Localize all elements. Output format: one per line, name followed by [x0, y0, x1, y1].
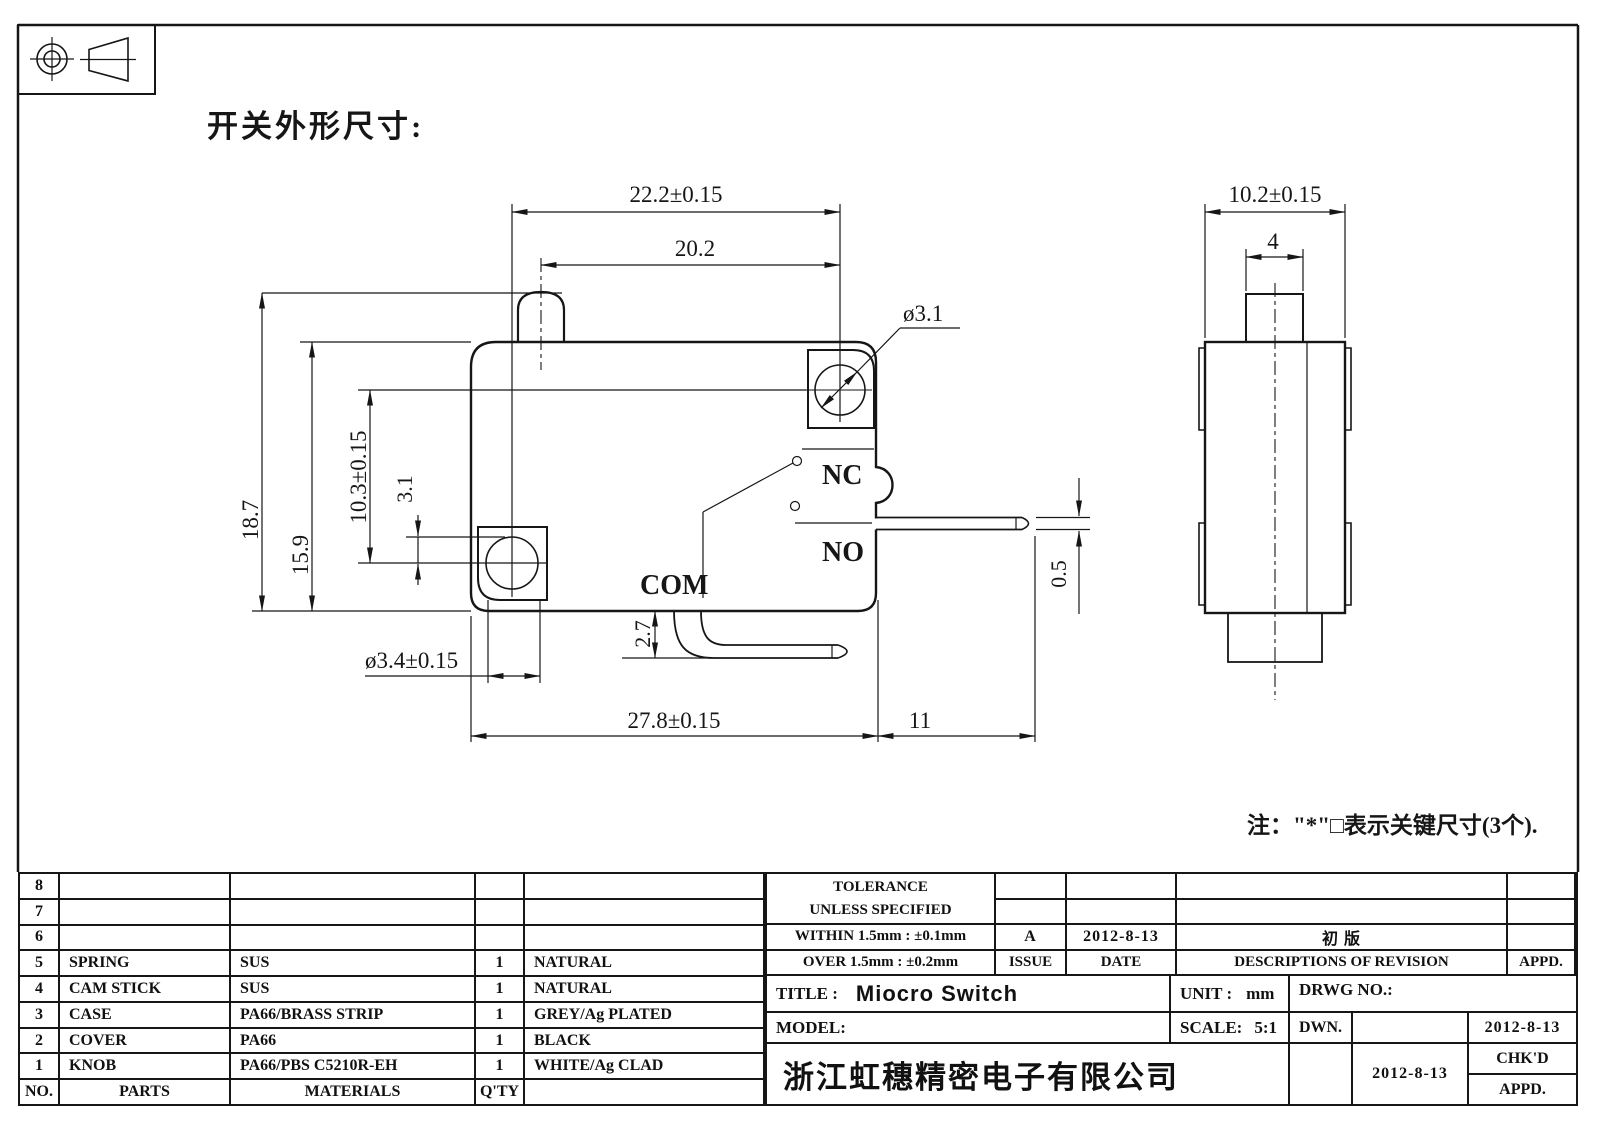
dim-terminal-thickness: 0.5 — [1046, 560, 1071, 588]
parts-row-color: WHITE/Ag CLAD — [525, 1054, 763, 1078]
dim-terminal-ext: 11 — [909, 708, 931, 733]
empty-cell — [996, 900, 1065, 924]
scale-value: 5:1 — [1254, 1018, 1277, 1038]
parts-row-material: PA66/PBS C5210R-EH — [231, 1054, 474, 1078]
nc-label: NC — [822, 460, 862, 491]
unit-label: UNIT : — [1180, 984, 1232, 1004]
parts-header-qty: Q'TY — [476, 1080, 523, 1104]
parts-row-qty: 1 — [476, 977, 523, 1001]
dim-side-button-width: 4 — [1267, 229, 1279, 254]
drawing-canvas: 开关外形尺寸: — [0, 0, 1600, 872]
title-label: TITLE : — [776, 984, 838, 1004]
parts-row-qty: 1 — [476, 1054, 523, 1078]
side-view-dim-labels: 10.2±0.15 4 — [1228, 182, 1321, 254]
parts-header-color — [525, 1080, 763, 1104]
dim-hole-bottom-dia: ø3.4±0.15 — [365, 648, 458, 673]
title-cell: TITLE : Miocro Switch — [767, 976, 1169, 1011]
no-terminal — [872, 518, 1030, 530]
title-value: Miocro Switch — [856, 981, 1018, 1007]
tolerance-line1: TOLERANCE — [833, 876, 928, 899]
dim-length-overall: 27.8±0.15 — [627, 708, 720, 733]
parts-row-part: KNOB — [60, 1054, 229, 1078]
company-name: 浙江虹穗精密电子有限公司 — [767, 1044, 1288, 1104]
descriptions-label: DESCRIPTIONS OF REVISION — [1177, 951, 1506, 975]
drwg-no-label: DRWG NO.: — [1299, 980, 1393, 1000]
section-title: 开关外形尺寸: — [207, 109, 424, 144]
parts-row-no: 8 — [20, 874, 58, 898]
dim-button-to-hole: 20.2 — [675, 236, 715, 261]
parts-header-parts: PARTS — [60, 1080, 229, 1104]
parts-row-part — [60, 926, 229, 950]
parts-row-part: CAM STICK — [60, 977, 229, 1001]
parts-row-material: PA66/BRASS STRIP — [231, 1003, 474, 1027]
model-label: MODEL: — [776, 1018, 846, 1038]
dim-hole-offset: 3.1 — [392, 475, 417, 503]
issue-label: ISSUE — [996, 951, 1065, 975]
tolerance-over: OVER 1.5mm : ±0.2mm — [767, 951, 994, 975]
parts-row-part — [60, 900, 229, 924]
parts-row-color: NATURAL — [525, 977, 763, 1001]
parts-row-color: GREY/Ag PLATED — [525, 1003, 763, 1027]
drawing-sheet: 开关外形尺寸: — [0, 0, 1600, 1131]
dwn-label: DWN. — [1290, 1013, 1351, 1042]
parts-row-part — [60, 874, 229, 898]
parts-row-no: 3 — [20, 1003, 58, 1027]
mount-boss-top — [808, 350, 874, 428]
parts-row-color — [525, 874, 763, 898]
chkd-date: 2012-8-13 — [1353, 1044, 1467, 1104]
dim-hole-spacing-v: 10.3±0.15 — [346, 430, 371, 523]
parts-row-part: CASE — [60, 1003, 229, 1027]
parts-header-materials: MATERIALS — [231, 1080, 474, 1104]
parts-row-no: 7 — [20, 900, 58, 924]
empty-cell — [1177, 900, 1506, 924]
com-terminal — [674, 611, 847, 658]
dim-hole-spacing-h: 22.2±0.15 — [629, 182, 722, 207]
parts-row-no: 2 — [20, 1029, 58, 1053]
dim-height-overall: 18.7 — [238, 500, 263, 540]
revision-issue-value: A — [996, 925, 1065, 949]
parts-header-no: NO. — [20, 1080, 58, 1104]
parts-row-color — [525, 900, 763, 924]
empty-cell — [1508, 900, 1574, 924]
parts-row-qty: 1 — [476, 1029, 523, 1053]
no-label: NO — [822, 537, 864, 568]
revision-table: TOLERANCE UNLESS SPECIFIED WITHIN 1.5mm … — [765, 872, 1578, 974]
key-dimension-note: 注："*"□表示关键尺寸(3个). — [1247, 812, 1538, 838]
dwn-signature-cell — [1353, 1013, 1467, 1042]
parts-row-no: 6 — [20, 926, 58, 950]
parts-row-material: SUS — [231, 977, 474, 1001]
empty-cell — [1067, 874, 1175, 898]
appd-row-label: APPD. — [1469, 1075, 1576, 1104]
date-label: DATE — [1067, 951, 1175, 975]
tolerance-within: WITHIN 1.5mm : ±0.1mm — [767, 925, 994, 949]
unit-value: mm — [1246, 984, 1274, 1004]
drwg-no-cell: DRWG NO.: — [1290, 976, 1576, 1011]
empty-cell — [1508, 874, 1574, 898]
tolerance-cell: TOLERANCE UNLESS SPECIFIED — [767, 874, 994, 923]
scale-cell: SCALE: 5:1 — [1171, 1013, 1288, 1042]
parts-row-material — [231, 926, 474, 950]
parts-row-color: NATURAL — [525, 951, 763, 975]
revision-date-value: 2012-8-13 — [1067, 925, 1175, 949]
empty-cell — [1067, 900, 1175, 924]
parts-row-part: SPRING — [60, 951, 229, 975]
parts-row-qty — [476, 926, 523, 950]
parts-row-no: 4 — [20, 977, 58, 1001]
parts-row-material: SUS — [231, 951, 474, 975]
dim-side-width: 10.2±0.15 — [1228, 182, 1321, 207]
empty-cell — [996, 874, 1065, 898]
parts-row-qty: 1 — [476, 1003, 523, 1027]
title-block: TITLE : Miocro Switch UNIT : mm DRWG NO.… — [765, 974, 1578, 1106]
parts-row-material: PA66 — [231, 1029, 474, 1053]
com-label: COM — [640, 570, 708, 601]
dim-com-drop: 2.7 — [630, 620, 655, 648]
parts-row-qty — [476, 900, 523, 924]
parts-row-no: 5 — [20, 951, 58, 975]
parts-row-color: BLACK — [525, 1029, 763, 1053]
dwn-date: 2012-8-13 — [1469, 1013, 1576, 1042]
revision-description-value: 初 版 — [1177, 925, 1506, 949]
parts-row-qty — [476, 874, 523, 898]
chkd-label: CHK'D — [1469, 1044, 1576, 1073]
parts-row-material — [231, 900, 474, 924]
switch-side-view — [1199, 283, 1351, 700]
appd-column-label: APPD. — [1508, 951, 1574, 975]
parts-row-part: COVER — [60, 1029, 229, 1053]
unit-cell: UNIT : mm — [1171, 976, 1288, 1011]
tolerance-line2: UNLESS SPECIFIED — [809, 899, 951, 922]
scale-label: SCALE: — [1180, 1018, 1242, 1038]
dim-hole-top-dia: ø3.1 — [903, 301, 943, 326]
parts-table: 8 7 6 5 SPRING SUS 1 NATURAL 4 CAM STICK… — [18, 872, 765, 1106]
parts-row-no: 1 — [20, 1054, 58, 1078]
empty-cell — [1177, 874, 1506, 898]
empty-cell — [1508, 925, 1574, 949]
chkd-appd-signature-cell — [1290, 1044, 1351, 1104]
model-cell: MODEL: — [767, 1013, 1169, 1042]
dim-height-body: 15.9 — [288, 535, 313, 575]
projection-symbol-icon — [18, 25, 155, 94]
switch-main-view — [471, 258, 1030, 658]
parts-row-material — [231, 874, 474, 898]
parts-row-color — [525, 926, 763, 950]
parts-row-qty: 1 — [476, 951, 523, 975]
